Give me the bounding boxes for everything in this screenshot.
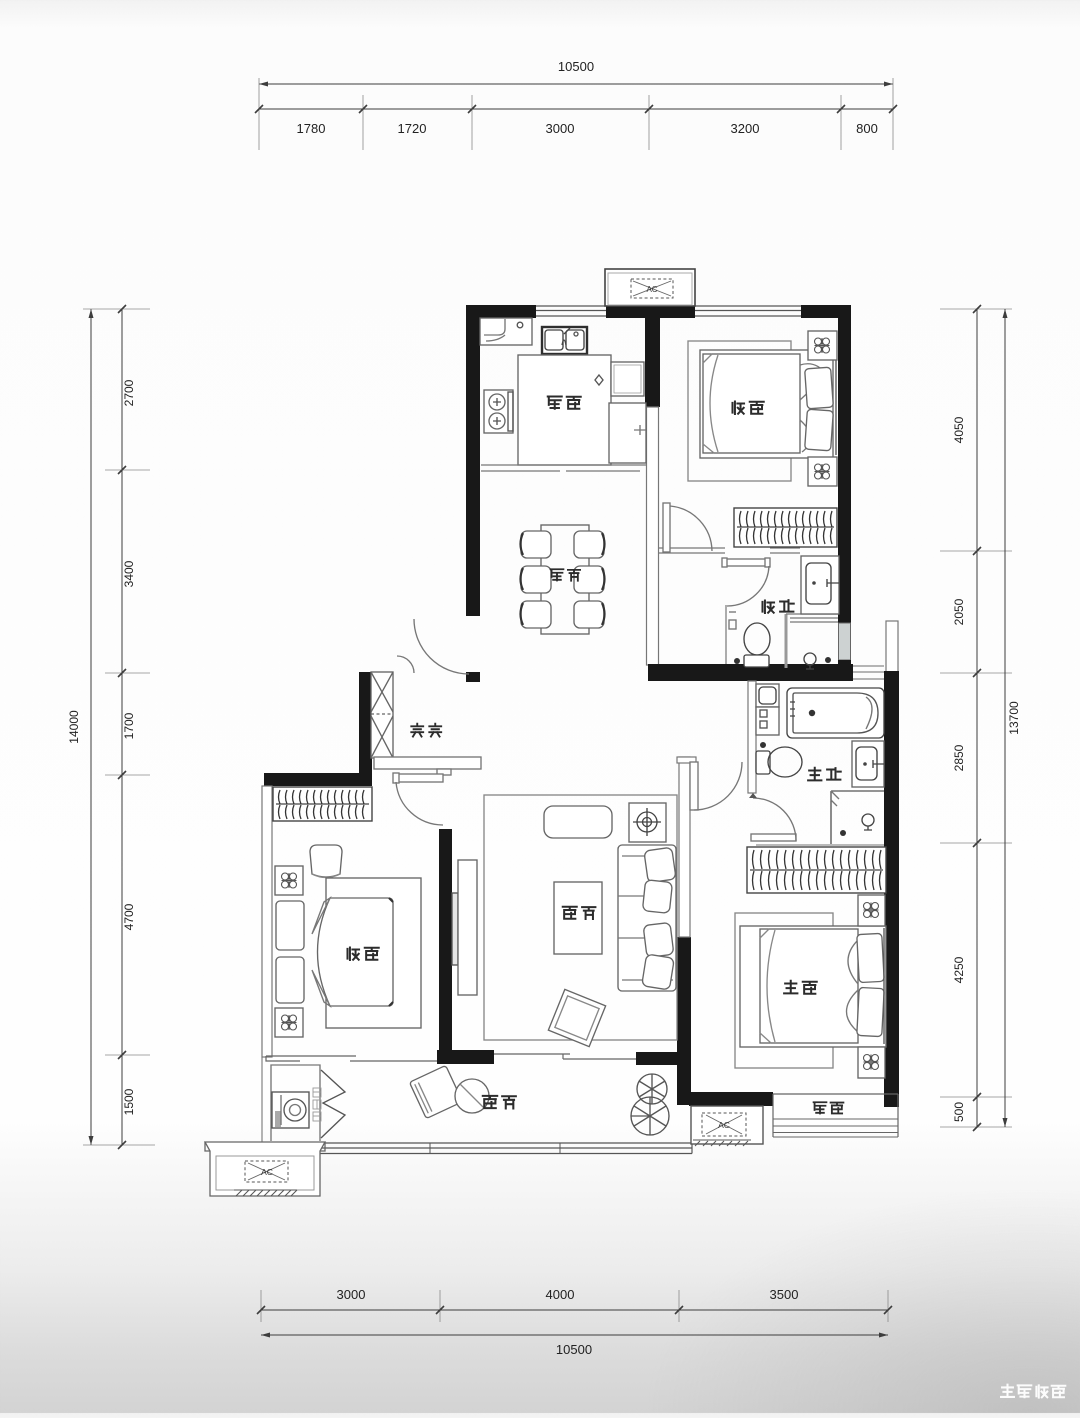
svg-text:2850: 2850: [952, 744, 966, 771]
svg-text:4050: 4050: [952, 416, 966, 443]
svg-text:AC: AC: [718, 1120, 730, 1130]
svg-text:10500: 10500: [558, 59, 594, 74]
svg-text:13700: 13700: [1007, 701, 1021, 735]
svg-text:800: 800: [856, 121, 878, 136]
svg-text:3200: 3200: [731, 121, 760, 136]
svg-text:4700: 4700: [122, 903, 136, 930]
svg-text:AC: AC: [646, 285, 657, 294]
svg-text:4250: 4250: [952, 956, 966, 983]
svg-text:14000: 14000: [67, 710, 81, 744]
svg-text:10500: 10500: [556, 1342, 592, 1357]
svg-text:3400: 3400: [122, 560, 136, 587]
svg-text:2700: 2700: [122, 379, 136, 406]
svg-text:1780: 1780: [297, 121, 326, 136]
svg-text:500: 500: [952, 1102, 966, 1122]
svg-text:2050: 2050: [952, 598, 966, 625]
svg-text:4000: 4000: [546, 1287, 575, 1302]
svg-text:3500: 3500: [770, 1287, 799, 1302]
svg-text:AC: AC: [261, 1167, 273, 1177]
svg-text:1700: 1700: [122, 712, 136, 739]
svg-text:3000: 3000: [337, 1287, 366, 1302]
svg-text:3000: 3000: [546, 121, 575, 136]
svg-text:1720: 1720: [398, 121, 427, 136]
svg-text:1500: 1500: [122, 1088, 136, 1115]
